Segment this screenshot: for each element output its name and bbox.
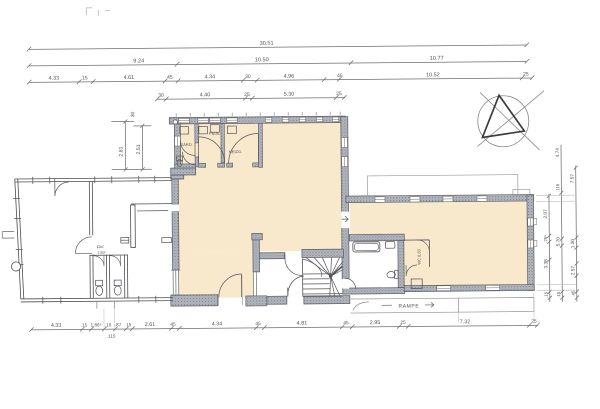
svg-text:30: 30 bbox=[130, 111, 136, 117]
svg-text:45: 45 bbox=[167, 75, 173, 81]
svg-text:45: 45 bbox=[170, 322, 176, 328]
svg-text:.25⁵: .25⁵ bbox=[543, 235, 548, 243]
svg-text:3.38: 3.38 bbox=[543, 259, 549, 269]
svg-text:.45: .45 bbox=[571, 290, 576, 297]
svg-text:2.57: 2.57 bbox=[570, 266, 576, 276]
svg-text:9.24: 9.24 bbox=[133, 58, 144, 64]
svg-text:45: 45 bbox=[343, 320, 349, 326]
svg-text:HEIZG.: HEIZG. bbox=[229, 149, 242, 154]
svg-text:1.86⁵: 1.86⁵ bbox=[91, 322, 102, 327]
svg-text:10.52: 10.52 bbox=[426, 72, 440, 78]
svg-text:.10: .10 bbox=[105, 322, 112, 327]
svg-text:4.81: 4.81 bbox=[297, 321, 308, 327]
svg-text:4.34: 4.34 bbox=[205, 74, 216, 80]
svg-text:2.81: 2.81 bbox=[118, 146, 124, 156]
svg-text:.15: .15 bbox=[125, 322, 132, 327]
svg-text:25: 25 bbox=[336, 91, 342, 97]
svg-text:2.51: 2.51 bbox=[136, 144, 142, 154]
svg-text:5.70: 5.70 bbox=[556, 237, 562, 247]
svg-text:.15: .15 bbox=[556, 291, 561, 298]
svg-text:4.34: 4.34 bbox=[212, 321, 223, 327]
svg-text:45: 45 bbox=[255, 321, 261, 327]
svg-text:45: 45 bbox=[337, 73, 343, 79]
svg-text:2.07: 2.07 bbox=[543, 209, 549, 219]
svg-text:.15: .15 bbox=[544, 291, 549, 298]
svg-text:7.32: 7.32 bbox=[460, 319, 471, 325]
svg-text:.15: .15 bbox=[81, 323, 88, 328]
svg-text:RAMPE: RAMPE bbox=[398, 303, 419, 309]
svg-text:15: 15 bbox=[82, 75, 88, 81]
svg-text:10.50: 10.50 bbox=[255, 57, 269, 63]
svg-text:4.33: 4.33 bbox=[49, 76, 60, 82]
svg-text:7.57: 7.57 bbox=[570, 174, 576, 184]
svg-text:4.74: 4.74 bbox=[555, 148, 561, 158]
svg-text:25: 25 bbox=[400, 320, 406, 326]
svg-text:30.51: 30.51 bbox=[260, 41, 274, 47]
svg-text:4.33: 4.33 bbox=[51, 323, 62, 329]
svg-text:2.61: 2.61 bbox=[145, 322, 156, 328]
svg-text:2.95: 2.95 bbox=[370, 320, 381, 326]
svg-text:.115: .115 bbox=[555, 183, 560, 192]
svg-text:1.30: 1.30 bbox=[570, 239, 576, 249]
svg-text:10.77: 10.77 bbox=[430, 56, 444, 62]
svg-text:30: 30 bbox=[158, 93, 164, 99]
svg-text:WC 0,60: WC 0,60 bbox=[416, 248, 421, 264]
svg-text:.115: .115 bbox=[107, 334, 116, 339]
svg-text:Flur: Flur bbox=[96, 244, 104, 250]
svg-text:4.61: 4.61 bbox=[124, 75, 135, 81]
svg-text:GARD.: GARD. bbox=[180, 142, 193, 147]
svg-text:30: 30 bbox=[245, 74, 251, 80]
svg-text:5.30: 5.30 bbox=[284, 92, 295, 98]
svg-text:25: 25 bbox=[244, 92, 250, 98]
svg-text:25: 25 bbox=[523, 71, 529, 77]
svg-text:4.96: 4.96 bbox=[284, 74, 295, 80]
svg-text:1.50²: 1.50² bbox=[97, 251, 106, 255]
svg-text:PEDE: PEDE bbox=[209, 131, 220, 136]
svg-text:4.40: 4.40 bbox=[200, 92, 211, 98]
svg-text:.87: .87 bbox=[115, 322, 122, 327]
